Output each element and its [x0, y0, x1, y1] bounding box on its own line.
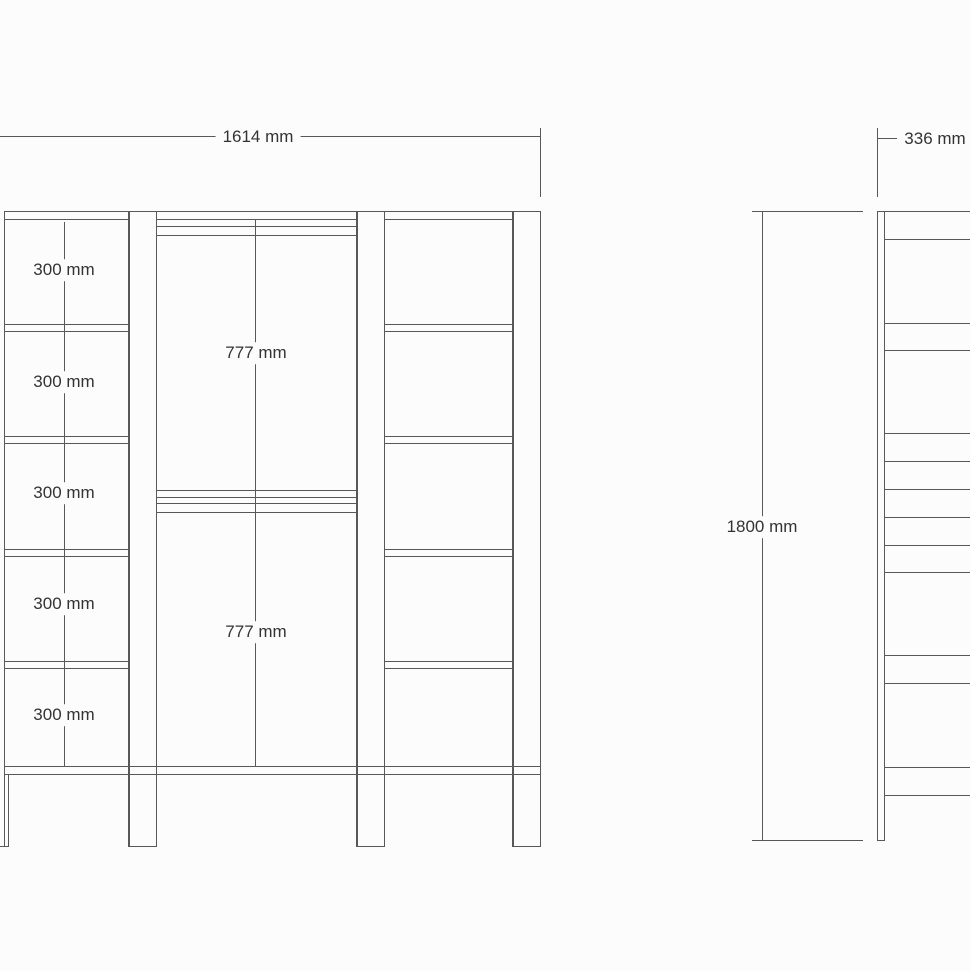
shelf-line	[4, 324, 128, 325]
shelf-line	[384, 668, 512, 669]
left-side-panel-edge	[4, 211, 5, 847]
bottom-shelf-line	[4, 774, 540, 775]
middle-rail-line	[156, 512, 356, 513]
side-shelf-line	[884, 323, 970, 324]
top-panel-line	[156, 219, 356, 220]
door-dimension-label: 777 mm	[218, 342, 293, 364]
middle-rail-line	[156, 490, 356, 491]
side-panel-bottom-cap	[877, 840, 885, 841]
side-shelf-line	[884, 517, 970, 518]
side-depth-dimension-label: 336 mm	[897, 128, 970, 150]
side-shelf-line	[884, 239, 970, 240]
leg-bottom-cap	[512, 846, 541, 847]
shelf-line	[384, 324, 512, 325]
middle-pillar-edge	[356, 211, 358, 847]
leg-bottom-cap	[356, 846, 385, 847]
middle-pillar-edge	[384, 211, 385, 847]
front-width-dimension-label: 1614 mm	[216, 126, 301, 148]
shelf-line	[4, 443, 128, 444]
side-shelf-line	[884, 433, 970, 434]
right-pillar-edge	[512, 211, 514, 847]
shelf-line	[4, 549, 128, 550]
top-rail-line	[156, 226, 356, 227]
leg-bottom-cap	[128, 846, 157, 847]
side-top-edge	[877, 211, 970, 212]
shelf-dimension-label: 300 mm	[26, 482, 101, 504]
shelf-line	[384, 661, 512, 662]
shelf-line	[384, 436, 512, 437]
side-height-dimension-tick	[752, 211, 863, 212]
door-dimension-line	[255, 219, 256, 767]
front-width-dimension-tick	[540, 128, 541, 197]
cabinet-top-edge	[4, 211, 540, 212]
leg-bottom-cap	[0, 846, 9, 847]
left-pillar-edge	[128, 211, 130, 847]
side-panel-edge	[877, 211, 878, 840]
middle-rail-line	[156, 497, 356, 498]
top-panel-line	[4, 219, 128, 220]
shelf-line	[4, 661, 128, 662]
shelf-line	[384, 443, 512, 444]
left-pillar-edge	[156, 211, 157, 847]
side-shelf-line	[884, 489, 970, 490]
side-depth-dimension-line	[877, 138, 897, 139]
side-shelf-line	[884, 572, 970, 573]
shelf-line	[4, 668, 128, 669]
shelf-line	[384, 549, 512, 550]
side-shelf-line	[884, 545, 970, 546]
side-shelf-line	[884, 795, 970, 796]
technical-drawing: 1614 mm 300	[0, 0, 970, 971]
side-shelf-line	[884, 461, 970, 462]
shelf-dimension-label: 300 mm	[26, 593, 101, 615]
shelf-line	[384, 331, 512, 332]
side-shelf-line	[884, 655, 970, 656]
bottom-shelf-line	[4, 766, 540, 767]
side-height-dimension-tick	[752, 840, 863, 841]
shelf-dimension-label: 300 mm	[26, 259, 101, 281]
right-side-panel-edge	[540, 211, 541, 847]
top-rail-line	[156, 235, 356, 236]
side-shelf-line	[884, 683, 970, 684]
side-height-dimension-label: 1800 mm	[720, 516, 805, 538]
shelf-line	[4, 331, 128, 332]
top-panel-line	[384, 219, 512, 220]
door-dimension-label: 777 mm	[218, 621, 293, 643]
shelf-dimension-label: 300 mm	[26, 704, 101, 726]
shelf-line	[4, 436, 128, 437]
side-shelf-line	[884, 767, 970, 768]
left-leg-edge	[8, 774, 9, 847]
side-panel-edge	[884, 211, 885, 840]
side-shelf-line	[884, 350, 970, 351]
shelf-line	[4, 556, 128, 557]
shelf-line	[384, 556, 512, 557]
middle-rail-line	[156, 503, 356, 504]
shelf-dimension-label: 300 mm	[26, 371, 101, 393]
